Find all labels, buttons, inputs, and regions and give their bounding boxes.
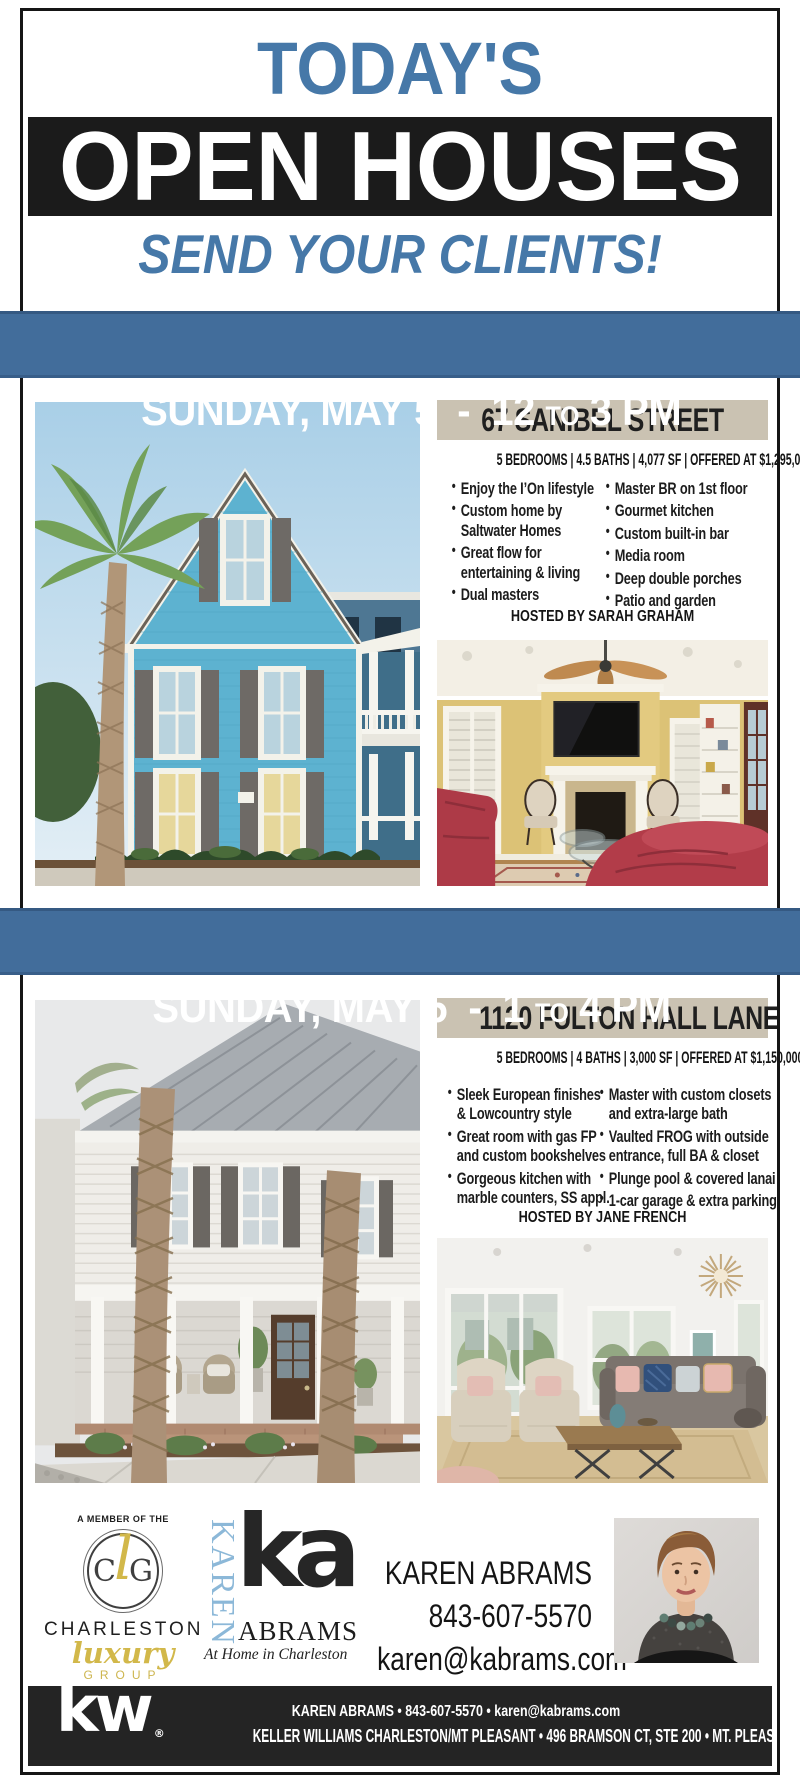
header-subtitle: SEND YOUR CLIENTS!: [48, 222, 752, 286]
listing1-interior-photo: [437, 640, 768, 886]
agent-contact-block: KAREN ABRAMS 843-607-5570 karen@kabrams.…: [330, 1552, 592, 1681]
session-banner-1: SUNDAY, MAY 5 - 12 TO 3 PM: [0, 311, 800, 378]
listing1-hosted-by: HOSTED BY SARAH GRAHAM: [437, 608, 768, 626]
open-houses-band: OPEN HOUSES: [28, 117, 772, 216]
banner1-text-left: SUNDAY, MAY 5 - 12: [141, 387, 545, 435]
bottom-bar-text: KAREN ABRAMS • 843-607-5570 • karen@kabr…: [148, 1703, 764, 1747]
agent-name: KAREN ABRAMS: [377, 1552, 592, 1595]
header-kicker: TODAY'S: [40, 26, 760, 111]
banner2-to: TO: [535, 998, 568, 1028]
bottom-line-2: KELLER WILLIAMS CHARLESTON/MT PLEASANT •…: [253, 1726, 660, 1747]
session-banner-2: SUNDAY, MAY 5 - 1 TO 4 PM: [0, 908, 800, 975]
bullet-item: Vaulted FROG with outside entrance, full…: [599, 1127, 794, 1166]
clg-script-word: luxury: [44, 1636, 202, 1670]
clg-member-line: A MEMBER OF THE: [44, 1514, 202, 1524]
bottom-line-1: KAREN ABRAMS • 843-607-5570 • karen@kabr…: [216, 1703, 696, 1721]
listing2-hosted-by: HOSTED BY JANE FRENCH: [437, 1209, 768, 1227]
bullet-item: Custom built-in bar: [605, 524, 800, 543]
banner1-text-right: 3 PM: [579, 387, 681, 435]
open-house-flyer: TODAY'S OPEN HOUSES SEND YOUR CLIENTS! S…: [0, 0, 800, 1783]
banner1-to: TO: [545, 401, 578, 431]
bullet-item: Plunge pool & covered lanai: [599, 1169, 794, 1188]
clg-letter-c: C: [93, 1554, 116, 1589]
bullet-item: Media room: [605, 546, 800, 565]
banner2-text-left: SUNDAY, MAY 5 - 1: [152, 984, 535, 1032]
ka-tagline: At Home in Charleston: [204, 1646, 347, 1664]
agent-headshot-photo: [614, 1518, 759, 1663]
banner2-text-right: 4 PM: [568, 984, 670, 1032]
ka-logo-vertical-name: KAREN: [203, 1519, 241, 1646]
agent-email: karen@kabrams.com: [377, 1638, 592, 1681]
bottom-bar: kw® KAREN ABRAMS • 843-607-5570 • karen@…: [28, 1686, 772, 1766]
clg-letter-g: G: [129, 1554, 153, 1589]
bullet-item: Deep double porches: [605, 569, 800, 588]
clg-monogram-circle: C l G: [83, 1529, 163, 1613]
clg-logo: A MEMBER OF THE C l G CHARLESTON luxury …: [44, 1514, 202, 1682]
listing2-interior-photo: [437, 1238, 768, 1483]
agent-phone: 843-607-5570: [377, 1595, 592, 1638]
page-title: OPEN HOUSES: [59, 117, 742, 216]
kw-logo: kw®: [56, 1680, 161, 1758]
bullet-item: 1-car garage & extra parking: [599, 1191, 794, 1210]
